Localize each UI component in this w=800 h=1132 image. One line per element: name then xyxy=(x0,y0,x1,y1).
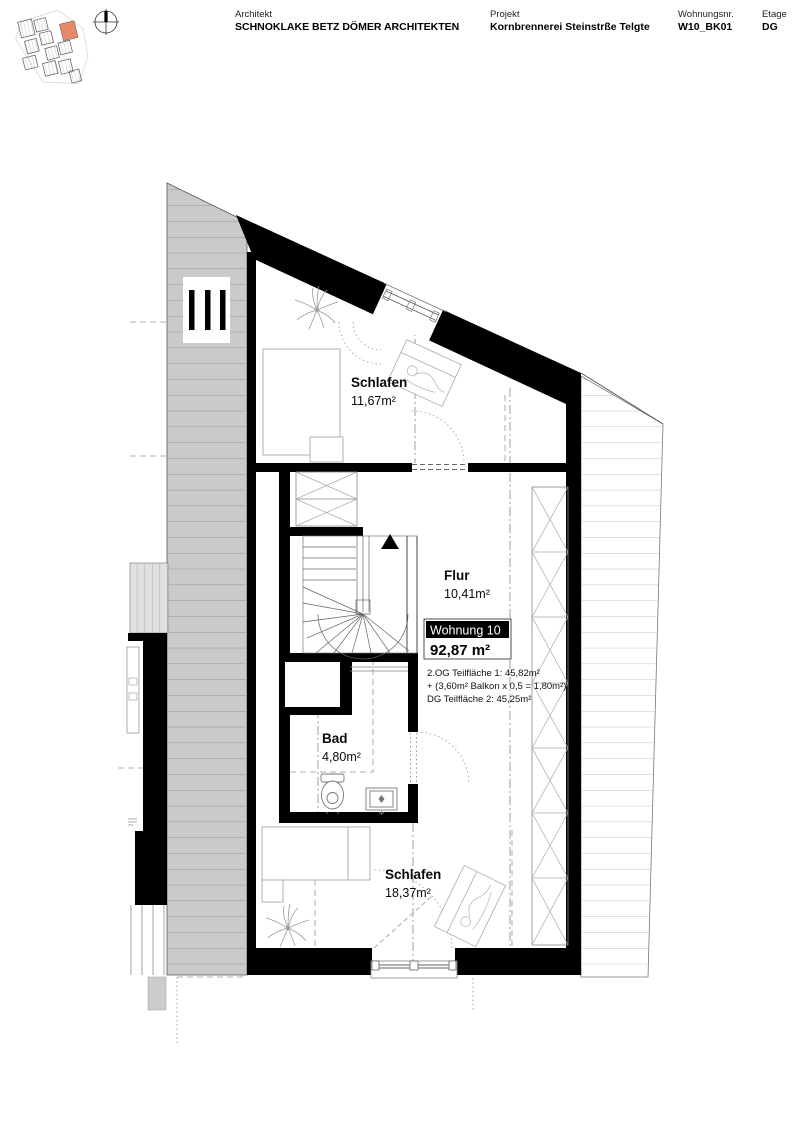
room-area-bad: 4,80m² xyxy=(322,750,361,764)
shaft xyxy=(285,662,340,707)
floor-plan-drawing: Schlafen 11,67m² Flur 10,41m² Bad 4,80m²… xyxy=(0,0,800,1132)
roof-band-left xyxy=(167,183,247,975)
plant-icon xyxy=(266,904,309,947)
wardrobe-right xyxy=(532,487,568,945)
room-label-flur: Flur xyxy=(444,568,470,583)
lounge-sketch-lower xyxy=(434,865,505,946)
site-highlighted-unit xyxy=(59,21,78,41)
left-structure xyxy=(127,563,168,1010)
sink-icon xyxy=(366,788,397,815)
room-area-schlafen-upper: 11,67m² xyxy=(351,394,396,408)
door-upper-bedroom xyxy=(412,411,468,470)
room-area-schlafen-lower: 18,37m² xyxy=(385,886,431,900)
roof-band-right xyxy=(581,373,663,977)
floorplan-sheet: Architekt SCHNOKLAKE BETZ DÖMER ARCHITEK… xyxy=(0,0,800,1132)
unit-badge-title: Wohnung 10 xyxy=(430,624,501,638)
area-calc-line3: DG Teilfläche 2: 45,25m² xyxy=(427,694,531,705)
area-calc-line1: 2.OG Teilfläche 1: 45,82m² xyxy=(427,668,540,679)
room-label-bad: Bad xyxy=(322,731,348,746)
bed-upper xyxy=(263,349,343,462)
door-bath xyxy=(411,732,470,784)
stairs xyxy=(303,534,417,659)
unit-badge-area: 92,87 m² xyxy=(430,642,490,659)
room-label-schlafen-lower: Schlafen xyxy=(385,867,441,882)
closet-hall xyxy=(296,472,357,526)
area-calc-line2: + (3,60m² Balkon x 0,5 = 1,80m²) xyxy=(427,681,566,692)
bottom-window xyxy=(371,961,457,978)
bath-shelf xyxy=(350,667,408,671)
room-label-schlafen-upper: Schlafen xyxy=(351,375,407,390)
unit-badge: Wohnung 10 92,87 m² 2.OG Teilfläche 1: 4… xyxy=(424,619,566,705)
site-plan-thumbnail xyxy=(11,5,119,95)
roof-window-icon xyxy=(183,277,230,343)
toilet-icon xyxy=(321,774,344,813)
bed-lower xyxy=(262,827,370,902)
north-arrow-icon xyxy=(93,9,119,35)
skylight-swing-arcs xyxy=(339,322,381,364)
room-area-flur: 10,41m² xyxy=(444,587,490,601)
